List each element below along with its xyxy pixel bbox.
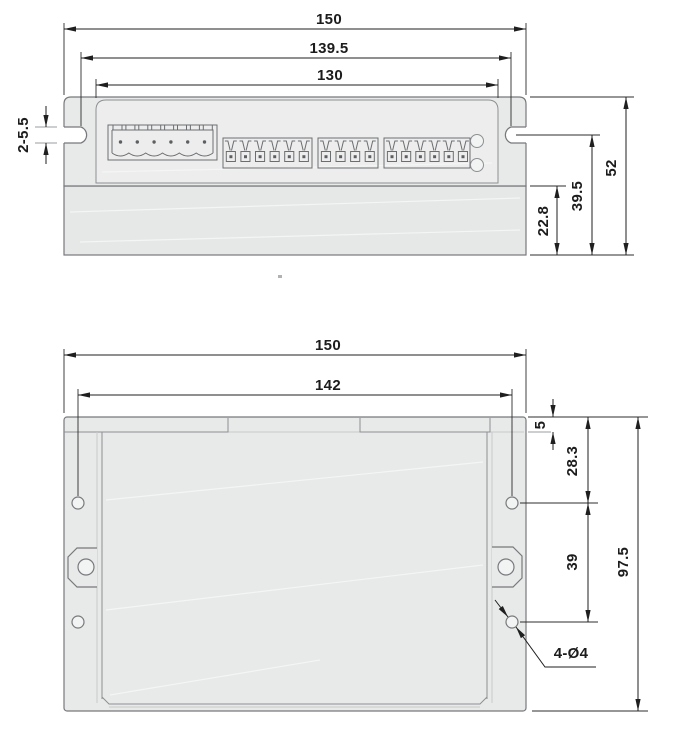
mounting-hole	[506, 616, 518, 628]
mounting-hole	[72, 497, 84, 509]
dim-front-overall-width: 150	[64, 11, 526, 95]
dimension-label: 4-Ø4	[554, 645, 589, 662]
dim-front-heights: 52 39.5 22.8	[516, 97, 634, 255]
dimension-label: 5	[532, 421, 549, 430]
drawing-page: 150 139.5 130 2-5.5	[0, 0, 695, 730]
mounting-hole	[72, 616, 84, 628]
heatsink-base	[64, 186, 526, 255]
dimension-label: 142	[315, 377, 341, 394]
tab-hole	[78, 559, 94, 575]
dimension-label: 130	[317, 67, 343, 84]
led-indicator-bottom	[471, 159, 484, 172]
plan-view: 150 142 5 28.3 39 97.5	[64, 337, 648, 711]
body-outline	[64, 417, 526, 711]
dim-front-slot-callout: 2-5.5	[15, 106, 57, 164]
dim-front-panel-width: 130	[96, 67, 498, 98]
tab-hole	[498, 559, 514, 575]
technical-drawing: 150 139.5 130 2-5.5	[0, 0, 695, 730]
dimension-label: 139.5	[309, 40, 348, 57]
dim-plan-overall-width: 150	[64, 337, 526, 413]
dim-plan-hole-spacing: 39	[520, 503, 598, 622]
dimension-label: 39	[564, 553, 581, 570]
led-indicator-top	[471, 135, 484, 148]
dimension-label: 28.3	[564, 446, 581, 476]
dimension-label: 52	[603, 159, 620, 176]
mounting-hole	[506, 497, 518, 509]
artifact-speck	[278, 275, 282, 278]
dimension-label: 2-5.5	[15, 117, 32, 153]
dimension-label: 150	[316, 11, 342, 28]
dimension-label: 97.5	[615, 547, 632, 577]
left-mounting-slot	[61, 127, 87, 143]
dimension-label: 150	[315, 337, 341, 354]
front-view: 150 139.5 130 2-5.5	[15, 11, 634, 255]
dimension-label: 22.8	[535, 206, 552, 236]
dimension-label: 39.5	[569, 181, 586, 211]
